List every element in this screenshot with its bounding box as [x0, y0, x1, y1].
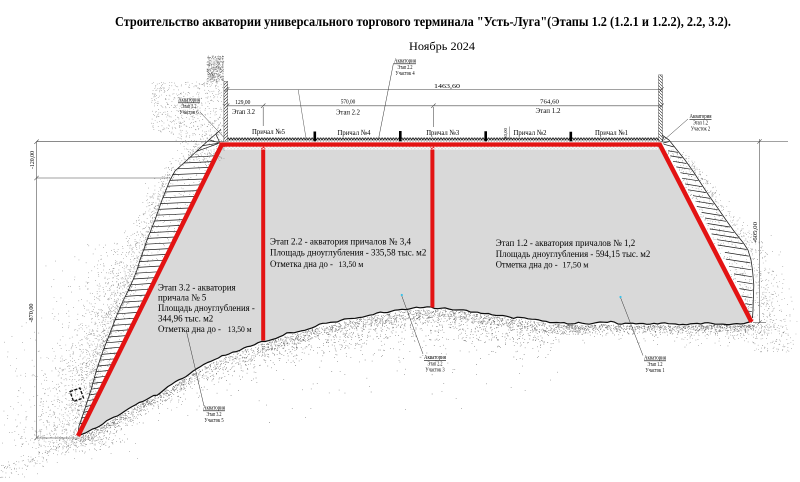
svg-text:Этап 1.2 - акватория причалов: Этап 1.2 - акватория причалов № 1,2 — [496, 239, 636, 249]
svg-text:Участок 4: Участок 4 — [395, 71, 414, 77]
svg-text:Этап 1.2: Этап 1.2 — [536, 106, 561, 115]
svg-text:Причал №2: Причал №2 — [514, 128, 547, 137]
svg-text:Участок 1: Участок 1 — [645, 368, 664, 374]
svg-text:Этап 2.2: Этап 2.2 — [398, 65, 413, 71]
svg-text:Площадь дноуглубления -: Площадь дноуглубления - — [158, 303, 255, 314]
svg-text:Этап 2.2: Этап 2.2 — [428, 361, 443, 367]
svg-text:Причал №5: Причал №5 — [252, 127, 285, 136]
svg-text:Участок 3: Участок 3 — [425, 368, 444, 374]
svg-text:764,60: 764,60 — [540, 99, 559, 106]
svg-text:Отметка дна до -: Отметка дна до - — [496, 261, 558, 271]
svg-text:Этап 1.2: Этап 1.2 — [693, 120, 708, 126]
svg-text:Участок 5: Участок 5 — [204, 418, 223, 424]
svg-text:Этап 2.2: Этап 2.2 — [336, 107, 360, 116]
svg-text:13,50 м: 13,50 м — [228, 325, 252, 334]
svg-text:Участок 2: Участок 2 — [691, 127, 710, 133]
svg-text:Этап 3.2: Этап 3.2 — [182, 104, 197, 110]
svg-text:Причал №3: Причал №3 — [426, 128, 459, 137]
svg-text:Этап 2.2 - акватория причалов: Этап 2.2 - акватория причалов № 3,4 — [270, 237, 411, 247]
svg-text:-605,00: -605,00 — [753, 222, 759, 243]
svg-text:Акватория: Акватория — [178, 98, 200, 104]
svg-text:-870,00: -870,00 — [29, 303, 35, 322]
svg-text:Этап 1.2: Этап 1.2 — [648, 362, 663, 368]
svg-text:344,96 тыс. м2: 344,96 тыс. м2 — [158, 315, 213, 325]
svg-text:Акватория: Акватория — [644, 356, 666, 362]
svg-text:Причал №4: Причал №4 — [338, 128, 371, 137]
svg-text:причала № 5: причала № 5 — [158, 294, 207, 304]
svg-text:1463,60: 1463,60 — [434, 83, 460, 90]
svg-text:Строительство акватории универ: Строительство акватории универсального т… — [115, 14, 731, 30]
svg-text:Площадь дноуглубления - 594,15: Площадь дноуглубления - 594,15 тыс. м2 — [496, 249, 651, 260]
svg-text:Отметка дна до -: Отметка дна до - — [270, 260, 333, 270]
svg-text:Площадь дноуглубления - 335,58: Площадь дноуглубления - 335,58 тыс. м2 — [270, 248, 427, 259]
svg-text:570,00: 570,00 — [341, 99, 356, 106]
svg-text:Этап 3.2: Этап 3.2 — [207, 412, 222, 418]
svg-text:Ноябрь 2024: Ноябрь 2024 — [409, 39, 475, 53]
svg-text:Этап 3.2 - акватория: Этап 3.2 - акватория — [158, 283, 236, 293]
svg-text:Отметка дна до -: Отметка дна до - — [158, 325, 221, 335]
svg-text:17,50 м: 17,50 м — [562, 260, 589, 270]
svg-text:Этап 3.2: Этап 3.2 — [232, 107, 255, 116]
svg-text:Акватория: Акватория — [424, 355, 446, 361]
svg-text:Акватория: Акватория — [394, 59, 416, 65]
svg-text:-120,00: -120,00 — [30, 151, 36, 169]
svg-text:Акватория: Акватория — [690, 114, 712, 120]
svg-text:Причал №1: Причал №1 — [595, 128, 628, 137]
svg-text:13,50 м: 13,50 м — [338, 260, 363, 269]
svg-text:Акватория: Акватория — [203, 406, 225, 412]
svg-text:129,00: 129,00 — [235, 99, 250, 106]
svg-text:Участок 6: Участок 6 — [179, 110, 198, 116]
